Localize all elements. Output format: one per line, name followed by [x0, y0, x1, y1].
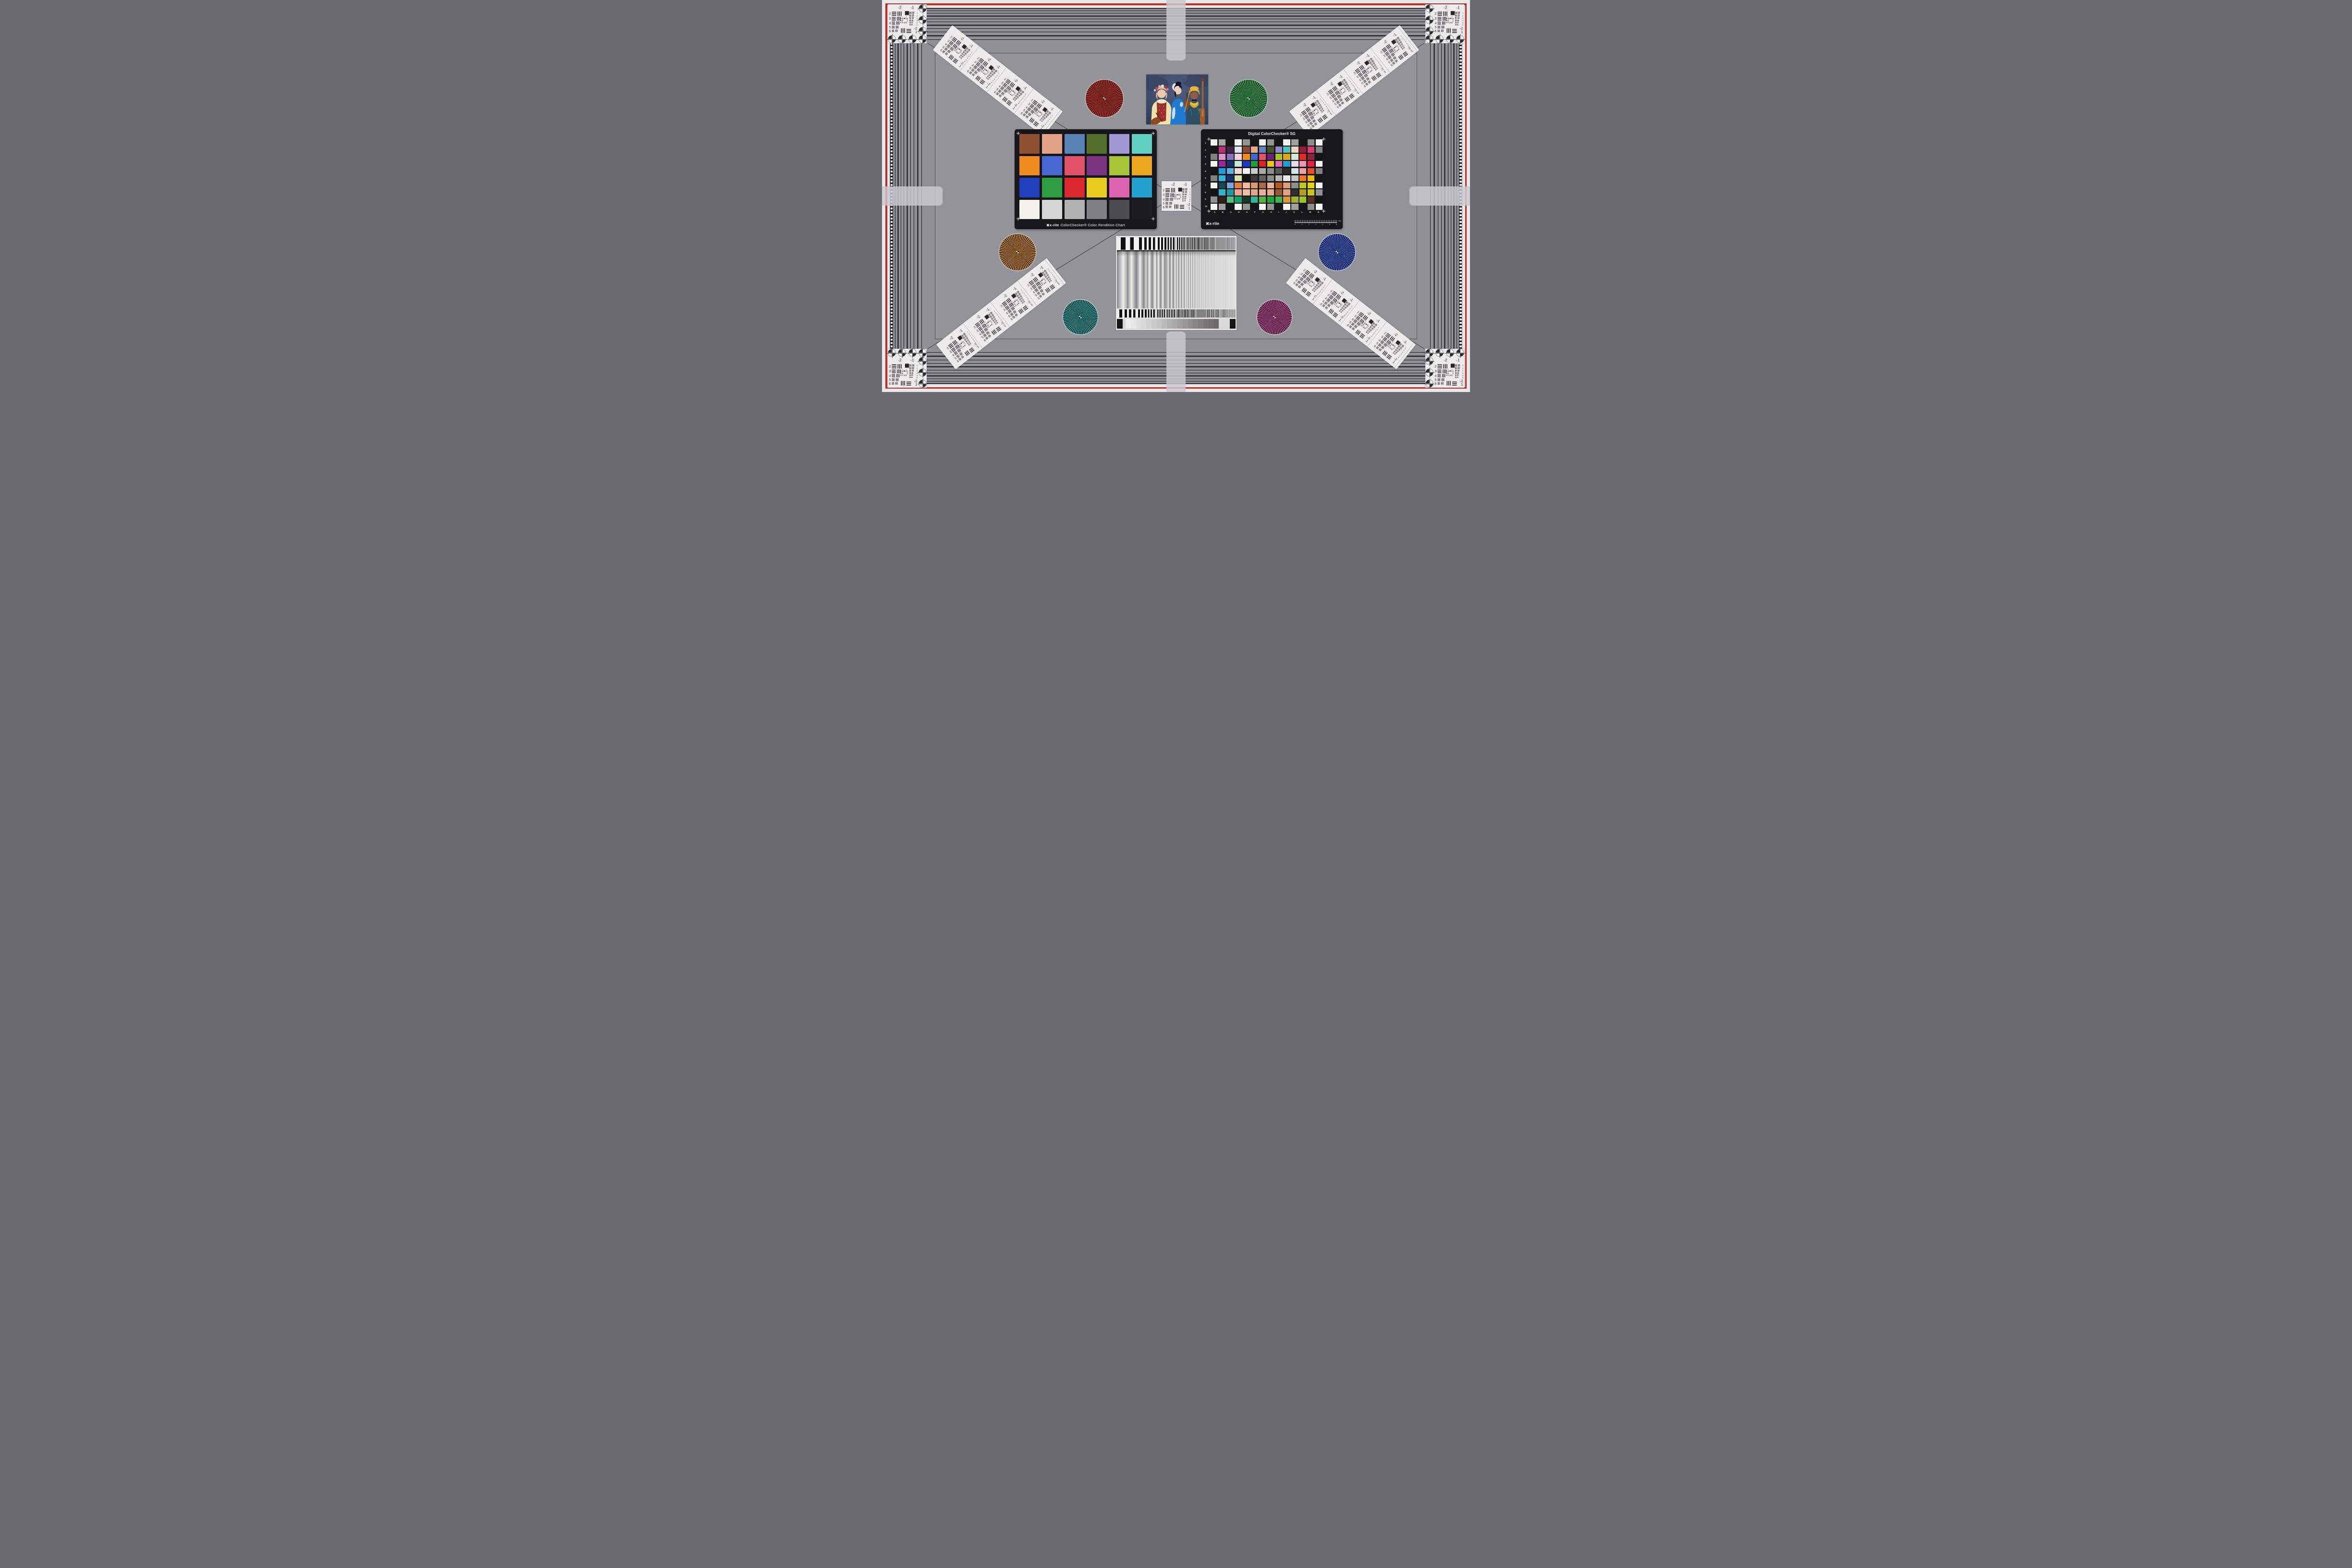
sg-patch-A10 — [1211, 204, 1217, 210]
wedge-step-9 — [1167, 319, 1172, 329]
sg-patch-F2 — [1251, 147, 1258, 153]
sg-mm-ruler: 0123456 mm — [1295, 220, 1337, 225]
sg-patch-N10 — [1316, 204, 1323, 210]
sg-row-label: 2 — [1205, 149, 1207, 151]
quadrant-circle-mark — [909, 349, 916, 356]
sweep-segment — [1186, 251, 1196, 308]
sg-patch-B4 — [1219, 161, 1225, 167]
sg-col-label: K — [1293, 211, 1295, 213]
sg-col-label: C — [1230, 211, 1232, 213]
sg-patch-N4 — [1316, 161, 1323, 167]
sg-patch-C6 — [1227, 175, 1234, 182]
quadrant-circle-mark — [919, 5, 926, 12]
wedge-step-7 — [1157, 319, 1162, 329]
sg-patch-G10 — [1259, 204, 1266, 210]
quadrant-circle-mark — [888, 349, 895, 356]
corner-target-top-right — [1425, 4, 1464, 43]
sg-row-labels: 12345678910 — [1205, 139, 1207, 210]
sg-patch-H9 — [1267, 196, 1274, 203]
wedge-step-6 — [1151, 319, 1157, 329]
sweep-segment — [1137, 237, 1147, 250]
sg-row-label: 8 — [1205, 191, 1207, 194]
sweep-segment — [1196, 309, 1206, 318]
sg-col-label: G — [1262, 211, 1264, 213]
sg-patch-E7 — [1243, 183, 1249, 189]
quadrant-circle-mark — [1426, 16, 1433, 24]
corner-target-bottom-right — [1425, 349, 1464, 388]
wedge-step-4 — [1141, 319, 1146, 329]
blue-starburst — [1319, 234, 1355, 270]
sg-ruler-tick: 0 — [1295, 223, 1296, 225]
sg-ruler-tick: 2 — [1309, 223, 1310, 225]
sg-patch-M3 — [1308, 154, 1314, 160]
sg-row-label: 1 — [1205, 142, 1207, 144]
sweep-segment — [1147, 237, 1157, 250]
sg-patch-I10 — [1275, 204, 1282, 210]
sweep-segment — [1206, 309, 1216, 318]
corner-target-bottom-left — [888, 349, 927, 388]
sweep-segment — [1156, 251, 1166, 308]
sg-patch-G6 — [1259, 175, 1266, 182]
sg-patch-L8 — [1299, 189, 1306, 196]
sg-patch-B8 — [1219, 189, 1225, 196]
sg-patch-K5 — [1291, 168, 1298, 174]
sg-patch-E6 — [1243, 175, 1249, 182]
sg-patch-A3 — [1211, 154, 1217, 160]
sg-patch-I9 — [1275, 196, 1282, 203]
wedge-step-17 — [1209, 319, 1214, 329]
sweep-segment — [1166, 237, 1176, 250]
sg-patch-C1 — [1227, 139, 1234, 146]
sg-ruler-ticks: 0123456 — [1295, 223, 1337, 225]
colorchecker-grid — [1019, 134, 1152, 219]
sg-row-label: 5 — [1205, 170, 1207, 172]
sg-patch-K9 — [1291, 196, 1298, 203]
sweep-segment — [1156, 309, 1166, 318]
sg-patch-D10 — [1235, 204, 1241, 210]
sweep-segment — [1137, 309, 1147, 318]
wedge-step-5 — [1146, 319, 1151, 329]
cc-patch-r1c2 — [1042, 134, 1062, 154]
sg-patch-N8 — [1316, 189, 1323, 196]
sg-patch-M5 — [1308, 168, 1314, 174]
sweep-segment — [1206, 237, 1216, 250]
sg-row-label: 6 — [1205, 177, 1207, 179]
sg-patch-G8 — [1259, 189, 1266, 196]
registration-marks-column — [919, 357, 927, 388]
sg-patch-F9 — [1251, 196, 1258, 203]
quadrant-circle-mark — [919, 16, 926, 24]
sg-patch-H2 — [1267, 147, 1274, 153]
sg-patch-J5 — [1283, 168, 1290, 174]
quadrant-circle-mark — [1436, 36, 1443, 43]
sweep-segment — [1156, 237, 1166, 250]
sg-patch-D8 — [1235, 189, 1241, 196]
sg-patch-J10 — [1283, 204, 1290, 210]
registration-marks-row — [888, 35, 927, 43]
sg-patch-L2 — [1299, 147, 1306, 153]
sg-patch-D7 — [1235, 183, 1241, 189]
quadrant-circle-mark — [1457, 36, 1464, 43]
sg-patch-N3 — [1316, 154, 1323, 160]
sg-patch-L6 — [1299, 175, 1306, 182]
quadrant-circle-mark — [1426, 5, 1433, 12]
sg-patch-H6 — [1267, 175, 1274, 182]
magenta-starburst — [1257, 300, 1292, 334]
sg-patch-C5 — [1227, 168, 1234, 174]
sweep-segment — [1176, 237, 1186, 250]
sg-patch-N6 — [1316, 175, 1323, 182]
sg-patch-J7 — [1283, 183, 1290, 189]
sg-patch-H10 — [1267, 204, 1274, 210]
quadrant-circle-mark — [1436, 349, 1443, 356]
sg-patch-E5 — [1243, 168, 1249, 174]
sg-patch-E2 — [1243, 147, 1249, 153]
colorchecker-title: ✖x-riteColorChecker® Color Rendition Cha… — [1015, 223, 1157, 227]
sweep-segment — [1176, 309, 1186, 318]
quadrant-circle-mark — [898, 349, 906, 356]
usaf-target — [1433, 357, 1464, 388]
square-wave-sweep-bottom — [1117, 309, 1236, 318]
sg-patch-F5 — [1251, 168, 1258, 174]
cc-patch-r4c6 — [1132, 200, 1152, 220]
sg-patch-A5 — [1211, 168, 1217, 174]
quadrant-circle-mark — [1426, 380, 1433, 387]
sg-col-label: F — [1254, 211, 1256, 213]
cc-patch-r2c3 — [1065, 156, 1085, 176]
sg-patch-K4 — [1291, 161, 1298, 167]
sg-patch-K1 — [1291, 139, 1298, 146]
quadrant-circle-mark — [1426, 27, 1433, 35]
sg-col-label: B — [1222, 211, 1224, 213]
sg-grid — [1211, 139, 1323, 210]
cc-patch-r3c6 — [1132, 178, 1152, 197]
sine-sweep-field — [1117, 251, 1236, 308]
cc-patch-r2c2 — [1042, 156, 1062, 176]
cc-patch-r3c2 — [1042, 178, 1062, 197]
wedge-step-11 — [1177, 319, 1183, 329]
sg-patch-H7 — [1267, 183, 1274, 189]
usaf-target — [888, 357, 919, 388]
sg-row-label: 4 — [1205, 163, 1207, 165]
sg-ruler-tick: 5 — [1329, 223, 1330, 225]
sg-patch-K6 — [1291, 175, 1298, 182]
usaf-target — [888, 4, 919, 35]
sg-patch-M4 — [1308, 161, 1314, 167]
sg-patch-G3 — [1259, 154, 1266, 160]
sg-patch-C7 — [1227, 183, 1234, 189]
cc-patch-r3c3 — [1065, 178, 1085, 197]
sg-patch-A8 — [1211, 189, 1217, 196]
sg-row-label: 9 — [1205, 198, 1207, 200]
sg-patch-B3 — [1219, 154, 1225, 160]
sg-patch-J2 — [1283, 147, 1290, 153]
cc-patch-r4c5 — [1109, 200, 1129, 220]
sg-patch-L1 — [1299, 139, 1306, 146]
sg-patch-K7 — [1291, 183, 1298, 189]
quadrant-circle-mark — [1426, 369, 1433, 376]
quadrant-circle-mark — [919, 36, 926, 43]
sg-patch-N2 — [1316, 147, 1323, 153]
sg-patch-J8 — [1283, 189, 1290, 196]
quadrant-circle-mark — [1426, 349, 1433, 356]
sweep-segment — [1216, 251, 1226, 308]
sg-row-label: 7 — [1205, 184, 1207, 186]
sweep-segment — [1117, 251, 1127, 308]
wedge-step-16 — [1203, 319, 1209, 329]
sg-col-label: M — [1309, 211, 1311, 213]
sg-patch-F3 — [1251, 154, 1258, 160]
sg-column-labels: ABCDEFGHIJKLMN — [1211, 211, 1323, 213]
cc-patch-r2c5 — [1109, 156, 1129, 176]
sg-patch-D3 — [1235, 154, 1241, 160]
sweep-segment — [1186, 309, 1196, 318]
sg-patch-A9 — [1211, 196, 1217, 203]
sg-patch-D9 — [1235, 196, 1241, 203]
three-musicians-test-photo — [1146, 74, 1208, 124]
sweep-segment — [1225, 309, 1236, 318]
wedge-step-15 — [1198, 319, 1203, 329]
sg-patch-E4 — [1243, 161, 1249, 167]
cc-patch-r3c1 — [1019, 178, 1040, 197]
quadrant-circle-mark — [919, 27, 926, 35]
quadrant-circle-mark — [1426, 36, 1433, 43]
quadrant-circle-mark — [909, 36, 916, 43]
cc-patch-r2c6 — [1132, 156, 1152, 176]
sg-patch-C10 — [1227, 204, 1234, 210]
sg-title: Digital ColorChecker® SG — [1201, 132, 1343, 136]
sg-col-label: D — [1238, 211, 1239, 213]
sg-patch-L9 — [1299, 196, 1306, 203]
sg-patch-L4 — [1299, 161, 1306, 167]
sg-patch-M9 — [1308, 196, 1314, 203]
grayscale-step-wedge — [1117, 318, 1236, 329]
sg-patch-D4 — [1235, 161, 1241, 167]
wedge-step-10 — [1172, 319, 1177, 329]
colorchecker-classic-card: ✖x-riteColorChecker® Color Rendition Cha… — [1015, 129, 1157, 229]
cc-patch-r4c3 — [1065, 200, 1085, 220]
sg-patch-B6 — [1219, 175, 1225, 182]
sg-patch-D6 — [1235, 175, 1241, 182]
sg-patch-J9 — [1283, 196, 1290, 203]
sg-patch-B5 — [1219, 168, 1225, 174]
cc-patch-r4c4 — [1087, 200, 1107, 220]
sg-ruler-tick: 3 — [1315, 223, 1316, 225]
sg-patch-G2 — [1259, 147, 1266, 153]
sg-ruler-unit: mm — [1338, 220, 1341, 222]
sg-patch-D2 — [1235, 147, 1241, 153]
sg-patch-N9 — [1316, 196, 1323, 203]
sweep-segment — [1147, 309, 1157, 318]
sweep-segment — [1147, 251, 1157, 308]
wedge-step-2 — [1131, 319, 1136, 329]
sg-patch-G9 — [1259, 196, 1266, 203]
registration-marks-column — [919, 4, 927, 35]
cc-patch-r1c6 — [1132, 134, 1152, 154]
sg-patch-E1 — [1243, 139, 1249, 146]
sg-patch-A7 — [1211, 183, 1217, 189]
sg-patch-D1 — [1235, 139, 1241, 146]
sweep-segment — [1225, 251, 1236, 308]
sg-patch-N5 — [1316, 168, 1323, 174]
sg-patch-C9 — [1227, 196, 1234, 203]
orange-starburst — [999, 234, 1036, 270]
sweep-segment — [1206, 251, 1216, 308]
quadrant-circle-mark — [919, 369, 926, 376]
sg-patch-I2 — [1275, 147, 1282, 153]
sweep-segment — [1117, 309, 1127, 318]
sg-patch-I3 — [1275, 154, 1282, 160]
sg-col-label: E — [1246, 211, 1248, 213]
sweep-segment — [1196, 251, 1206, 308]
sg-patch-G5 — [1259, 168, 1266, 174]
sg-patch-A4 — [1211, 161, 1217, 167]
sg-patch-I1 — [1275, 139, 1282, 146]
xrite-logo: ✖x-rite — [1206, 221, 1219, 226]
sg-patch-G7 — [1259, 183, 1266, 189]
quadrant-circle-mark — [919, 349, 926, 356]
green-starburst — [1230, 80, 1267, 117]
sg-patch-F8 — [1251, 189, 1258, 196]
sg-patch-F7 — [1251, 183, 1258, 189]
quadrant-circle-mark — [888, 36, 895, 43]
sg-patch-C8 — [1227, 189, 1234, 196]
sweep-segment — [1216, 237, 1226, 250]
sg-patch-F1 — [1251, 139, 1258, 146]
sg-patch-G1 — [1259, 139, 1266, 146]
red-starburst — [1086, 80, 1123, 117]
sg-patch-B9 — [1219, 196, 1225, 203]
usaf-target — [1433, 4, 1464, 35]
sg-patch-B1 — [1219, 139, 1225, 146]
cc-patch-r1c3 — [1065, 134, 1085, 154]
sg-patch-B10 — [1219, 204, 1225, 210]
sg-patch-F6 — [1251, 175, 1258, 182]
sg-patch-E10 — [1243, 204, 1249, 210]
sg-patch-N1 — [1316, 139, 1323, 146]
sweep-segment — [1186, 237, 1196, 250]
sg-patch-M10 — [1308, 204, 1314, 210]
sg-col-label: H — [1270, 211, 1272, 213]
sg-patch-H1 — [1267, 139, 1274, 146]
colorchecker-sg-card: Digital ColorChecker® SG 12345678910 ABC… — [1201, 129, 1343, 229]
registration-marks-column — [1425, 357, 1433, 388]
sg-patch-I4 — [1275, 161, 1282, 167]
sg-patch-J6 — [1283, 175, 1290, 182]
sweep-segment — [1166, 309, 1176, 318]
sg-patch-K10 — [1291, 204, 1298, 210]
quadrant-circle-mark — [1446, 349, 1454, 356]
xrite-logo-icon: ✖ — [1046, 223, 1050, 228]
registration-marks-column — [1425, 4, 1433, 35]
quadrant-circle-mark — [1446, 36, 1454, 43]
sg-patch-L5 — [1299, 168, 1306, 174]
sg-patch-K2 — [1291, 147, 1298, 153]
square-wave-sweep-top — [1117, 237, 1236, 250]
wedge-black-patch — [1117, 319, 1123, 329]
quadrant-circle-mark — [898, 36, 906, 43]
quadrant-circle-mark — [1426, 357, 1433, 365]
sg-patch-H5 — [1267, 168, 1274, 174]
sg-patch-F10 — [1251, 204, 1258, 210]
sg-patch-H8 — [1267, 189, 1274, 196]
quadrant-circle-mark — [919, 380, 926, 387]
sweep-segment — [1137, 251, 1147, 308]
wedge-step-8 — [1162, 319, 1167, 329]
sg-patch-A1 — [1211, 139, 1217, 146]
sg-patch-M8 — [1308, 189, 1314, 196]
cc-patch-r4c2 — [1042, 200, 1062, 220]
cc-patch-r1c1 — [1019, 134, 1040, 154]
sg-patch-F4 — [1251, 161, 1258, 167]
wedge-step-3 — [1136, 319, 1141, 329]
sg-patch-J4 — [1283, 161, 1290, 167]
sg-patch-N7 — [1316, 183, 1323, 189]
sg-patch-L7 — [1299, 183, 1306, 189]
xrite-logo-icon: ✖ — [1206, 221, 1209, 227]
sg-patch-M2 — [1308, 147, 1314, 153]
sg-patch-H4 — [1267, 161, 1274, 167]
registration-marks-row — [1425, 349, 1464, 357]
sg-patch-I7 — [1275, 183, 1282, 189]
sg-col-label: I — [1278, 211, 1279, 213]
sg-patch-C4 — [1227, 161, 1234, 167]
registration-marks-row — [888, 349, 927, 357]
sg-col-label: A — [1214, 211, 1215, 213]
sg-patch-J3 — [1283, 154, 1290, 160]
sweep-segment — [1127, 309, 1137, 318]
sweep-segment — [1127, 251, 1137, 308]
sg-patch-L3 — [1299, 154, 1306, 160]
cc-patch-r1c4 — [1087, 134, 1107, 154]
sweep-segment — [1117, 237, 1127, 250]
sg-col-label: N — [1318, 211, 1319, 213]
wedge-step-18 — [1214, 319, 1219, 329]
sweep-segment — [1225, 237, 1236, 250]
sg-patch-M6 — [1308, 175, 1314, 182]
sg-patch-C3 — [1227, 154, 1234, 160]
registration-marks-row — [1425, 35, 1464, 43]
sg-patch-I8 — [1275, 189, 1282, 196]
sg-ruler-tick: 6 — [1336, 223, 1337, 225]
quadrant-circle-mark — [919, 357, 926, 365]
sg-col-label: L — [1301, 211, 1303, 213]
wedge-step-14 — [1193, 319, 1198, 329]
sg-patch-B2 — [1219, 147, 1225, 153]
sg-patch-E9 — [1243, 196, 1249, 203]
sg-patch-A6 — [1211, 175, 1217, 182]
wedge-step-13 — [1188, 319, 1193, 329]
cc-patch-r3c4 — [1087, 178, 1107, 197]
sg-col-label: J — [1286, 211, 1287, 213]
sg-patch-A2 — [1211, 147, 1217, 153]
corner-target-top-left — [888, 4, 927, 43]
center-usaf-target — [1162, 181, 1191, 211]
teal-starburst — [1063, 300, 1098, 334]
sg-patch-D5 — [1235, 168, 1241, 174]
sweep-segment — [1216, 309, 1226, 318]
xrite-brand: x-rite — [1050, 223, 1059, 227]
sg-patch-I6 — [1275, 175, 1282, 182]
sg-patch-E3 — [1243, 154, 1249, 160]
quadrant-circle-mark — [1457, 349, 1464, 356]
sg-patch-L10 — [1299, 204, 1306, 210]
sg-patch-M7 — [1308, 183, 1314, 189]
cc-patch-r2c1 — [1019, 156, 1040, 176]
wedge-black-patch — [1230, 319, 1236, 329]
sg-patch-E8 — [1243, 189, 1249, 196]
sg-patch-B7 — [1219, 183, 1225, 189]
